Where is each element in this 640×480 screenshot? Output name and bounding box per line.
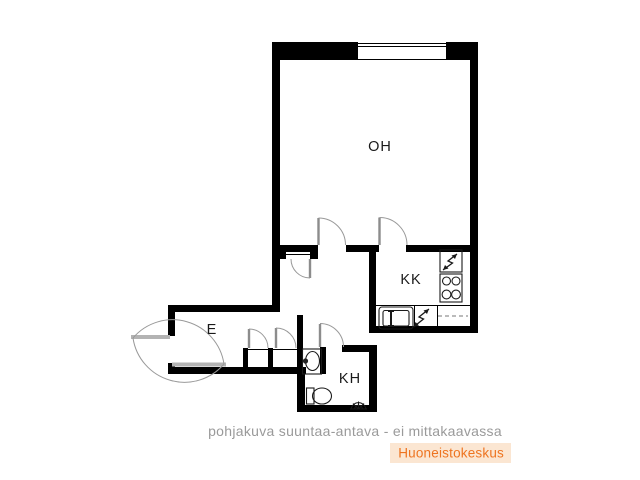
stove-burner-3	[442, 290, 451, 299]
door-arc-closet1	[249, 329, 268, 348]
stove-burner-4	[452, 290, 461, 299]
wall-closet-stub-1	[243, 348, 248, 368]
door-arc-oh-corridor	[319, 218, 346, 245]
wall-corridor-stub-a	[277, 252, 286, 259]
wall-kh-top-right	[342, 345, 369, 352]
wall-sink-niche-right	[320, 347, 326, 374]
wall-corridor-stub-b	[310, 252, 318, 259]
wall-top-left	[272, 42, 358, 60]
wall-kh-right	[369, 345, 377, 412]
wall-e-top	[168, 305, 280, 312]
washbasin-faucet-icon	[303, 358, 308, 363]
stove-burner-1	[443, 277, 451, 285]
kitchen-faucet-icon	[388, 311, 394, 326]
stove-burner-2	[452, 277, 460, 285]
wall-oh-bottom-a	[272, 245, 318, 252]
fridge-box	[440, 250, 462, 272]
toilet-bowl	[313, 388, 332, 404]
entrance-door-arc-lower	[133, 338, 224, 382]
wall-e-bottom	[168, 367, 306, 374]
walls	[168, 42, 478, 412]
brand-logo-text: Huoneistokeskus	[398, 446, 504, 461]
room-label-e: E	[207, 322, 218, 338]
kitchen-fixtures	[376, 250, 470, 329]
room-label-oh: OH	[368, 139, 392, 155]
room-label-kk: KK	[400, 272, 421, 288]
door-arc-kh	[320, 324, 344, 348]
wall-left	[272, 42, 280, 312]
window-oh	[357, 44, 446, 60]
floor-plan-drawing: OH KK E KH pohjakuva suuntaa-antava - ei…	[0, 0, 640, 480]
wall-e-left-upper	[168, 305, 175, 336]
wall-oh-bottom-c	[406, 245, 470, 252]
wall-closet-stub-2	[268, 348, 273, 368]
kitchen-sink-basin	[383, 311, 409, 327]
entrance-door-slab-top	[131, 335, 170, 339]
door-arc-corridor-closet	[291, 259, 310, 278]
room-label-kh: KH	[339, 371, 361, 387]
floor-plan-page: OH KK E KH pohjakuva suuntaa-antava - ei…	[0, 0, 640, 480]
entrance-door-slab-bottom	[172, 363, 226, 367]
wall-kk-left	[369, 245, 376, 333]
door-arc-closet2	[276, 328, 296, 348]
door-arc-oh-kk	[380, 218, 408, 246]
wall-right	[470, 42, 478, 333]
disclaimer-caption: pohjakuva suuntaa-antava - ei mittakaava…	[208, 423, 502, 439]
